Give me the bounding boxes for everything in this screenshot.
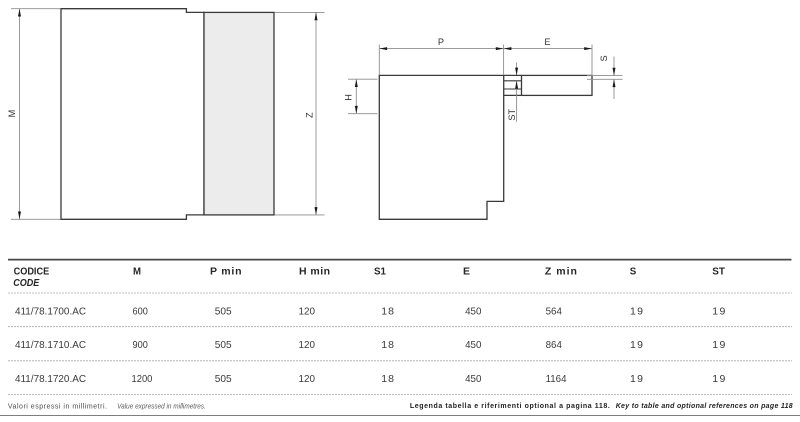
svg-text:411/78.1720.AC: 411/78.1720.AC: [15, 373, 86, 385]
svg-text:505: 505: [215, 306, 232, 318]
svg-text:120: 120: [299, 339, 316, 351]
svg-text:H: H: [344, 94, 354, 101]
svg-text:450: 450: [465, 306, 481, 318]
svg-text:H min: H min: [299, 266, 330, 278]
svg-text:E: E: [463, 266, 470, 278]
svg-text:Legenda tabella e riferimenti: Legenda tabella e riferimenti optional a…: [410, 403, 610, 410]
svg-text:505: 505: [215, 373, 232, 385]
svg-text:411/78.1710.AC: 411/78.1710.AC: [15, 339, 86, 351]
svg-text:505: 505: [215, 339, 232, 351]
svg-text:Z: Z: [305, 112, 315, 118]
svg-text:450: 450: [465, 373, 481, 385]
svg-text:19: 19: [630, 306, 643, 318]
svg-text:19: 19: [712, 306, 725, 318]
svg-text:Valori espressi in millimetri.: Valori espressi in millimetri.: [8, 403, 107, 410]
svg-text:864: 864: [546, 339, 562, 351]
svg-text:18: 18: [381, 373, 394, 385]
svg-text:Key to table and optional refe: Key to table and optional references on …: [616, 403, 793, 410]
svg-text:120: 120: [299, 306, 316, 318]
svg-text:450: 450: [465, 339, 481, 351]
svg-text:120: 120: [299, 373, 316, 385]
svg-text:E: E: [544, 37, 550, 47]
svg-text:19: 19: [630, 373, 643, 385]
svg-text:18: 18: [381, 339, 394, 351]
svg-text:411/78.1700.AC: 411/78.1700.AC: [15, 306, 86, 318]
svg-text:564: 564: [546, 306, 562, 318]
svg-text:900: 900: [133, 339, 148, 351]
svg-text:P: P: [438, 37, 444, 47]
svg-text:CODICE: CODICE: [14, 266, 50, 278]
svg-text:M: M: [133, 266, 141, 278]
svg-text:19: 19: [712, 373, 725, 385]
svg-text:P min: P min: [210, 266, 242, 278]
svg-text:M: M: [7, 110, 17, 118]
svg-text:S: S: [599, 55, 609, 61]
svg-text:1164: 1164: [546, 373, 567, 385]
svg-text:19: 19: [630, 339, 643, 351]
svg-text:CODE: CODE: [13, 277, 40, 289]
svg-text:Z min: Z min: [545, 266, 577, 278]
svg-text:S1: S1: [374, 266, 386, 278]
svg-text:ST: ST: [507, 108, 517, 120]
svg-text:19: 19: [712, 339, 725, 351]
svg-text:S: S: [630, 266, 637, 278]
svg-text:ST: ST: [712, 266, 725, 278]
svg-text:1200: 1200: [132, 373, 153, 385]
svg-text:600: 600: [133, 306, 148, 318]
svg-text:Value expressed in millimetres: Value expressed in millimetres.: [117, 403, 206, 410]
svg-text:18: 18: [381, 306, 394, 318]
